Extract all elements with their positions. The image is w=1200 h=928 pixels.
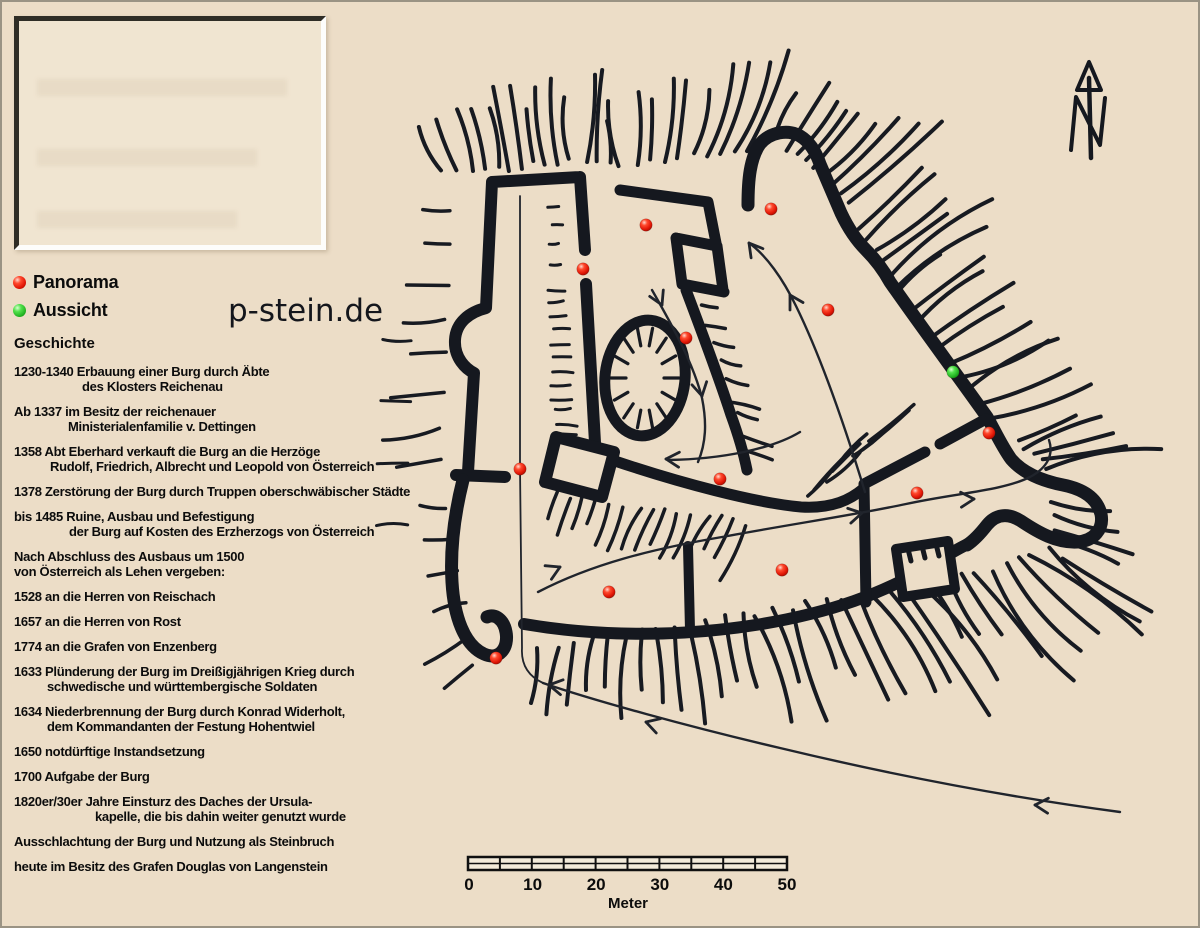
panorama-dot[interactable] <box>514 463 526 475</box>
scale-label: 30 <box>650 875 669 895</box>
scale-label: 40 <box>714 875 733 895</box>
footpath-approach <box>543 683 1120 812</box>
panorama-dot[interactable] <box>776 564 788 576</box>
wall-divider-stub <box>688 546 690 630</box>
north-arrow <box>1071 62 1105 158</box>
scale-label: 10 <box>523 875 542 895</box>
footpath-survey-line <box>520 196 543 683</box>
scale-label: 50 <box>778 875 797 895</box>
panorama-dot[interactable] <box>911 487 923 499</box>
castle-plan-page: Panorama Aussicht p-stein.de Geschichte … <box>0 0 1200 928</box>
wall-left-building <box>455 177 597 478</box>
wall-crenellated-tower <box>896 541 955 597</box>
panorama-dot[interactable] <box>714 473 726 485</box>
panorama-dot[interactable] <box>822 304 834 316</box>
scale-bar <box>468 857 787 870</box>
panorama-dot[interactable] <box>490 652 502 664</box>
aussicht-dot[interactable] <box>947 366 959 378</box>
scale-unit-label: Meter <box>608 895 648 912</box>
panorama-dot[interactable] <box>640 219 652 231</box>
panorama-dot[interactable] <box>983 427 995 439</box>
wall-inner-court <box>612 460 863 507</box>
panorama-dot[interactable] <box>765 203 777 215</box>
wall-j-hook <box>452 480 507 656</box>
panorama-dot[interactable] <box>680 332 692 344</box>
panorama-dot[interactable] <box>577 263 589 275</box>
scale-label: 0 <box>464 875 473 895</box>
castle-map <box>0 0 1200 928</box>
scale-labels: 01020304050 <box>0 875 1200 895</box>
scale-label: 20 <box>587 875 606 895</box>
wall-annex <box>545 437 614 497</box>
panorama-dot[interactable] <box>603 586 615 598</box>
